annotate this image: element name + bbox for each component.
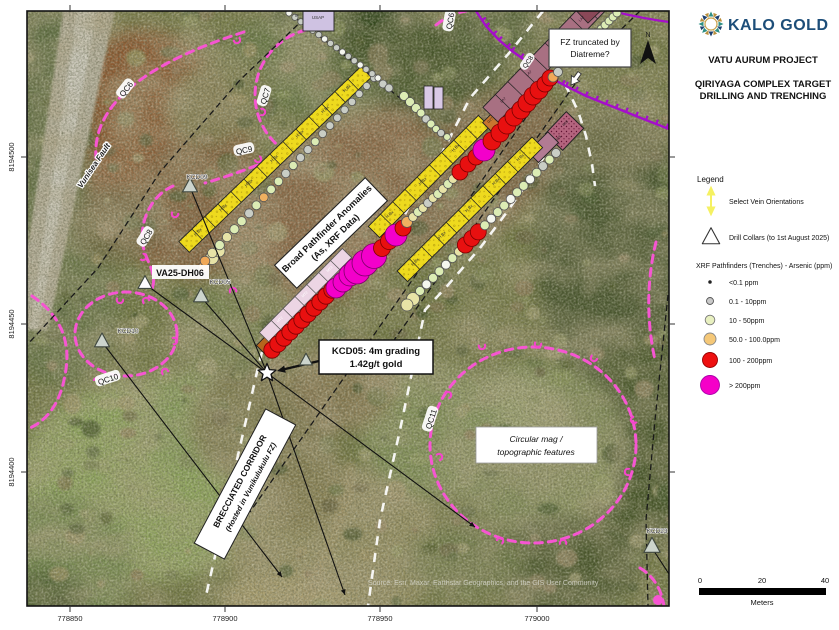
svg-text:779000: 779000 <box>524 614 549 623</box>
svg-text:<0.1 ppm: <0.1 ppm <box>729 280 759 287</box>
svg-text:Meters: Meters <box>751 598 774 607</box>
svg-text:778850: 778850 <box>57 614 82 623</box>
svg-text:Select Vein Orientations: Select Vein Orientations <box>729 199 804 206</box>
svg-text:KALO GOLD: KALO GOLD <box>728 17 829 34</box>
svg-text:778900: 778900 <box>212 614 237 623</box>
svg-text:IP: IP <box>295 13 299 18</box>
svg-text:1.42g/t gold: 1.42g/t gold <box>350 359 403 370</box>
svg-text:0.1 - 10ppm: 0.1 - 10ppm <box>729 299 767 306</box>
svg-text:XRF Pathfinders (Trenches) - A: XRF Pathfinders (Trenches) - Arsenic (pp… <box>696 263 832 270</box>
svg-text:KCD05: KCD05 <box>210 279 231 286</box>
svg-text:100 - 200ppm: 100 - 200ppm <box>729 358 772 365</box>
svg-text:40: 40 <box>821 576 829 585</box>
svg-text:Circular mag /: Circular mag / <box>510 434 565 444</box>
svg-text:N: N <box>645 32 650 39</box>
svg-text:KCD05: 4m grading: KCD05: 4m grading <box>332 346 420 357</box>
svg-text:50.0 - 100.0ppm: 50.0 - 100.0ppm <box>729 337 780 344</box>
svg-text:VA25-DH06: VA25-DH06 <box>156 268 204 278</box>
svg-text:Diatreme?: Diatreme? <box>570 49 609 59</box>
svg-text:8194500: 8194500 <box>7 142 16 171</box>
svg-text:topographic features: topographic features <box>497 447 575 457</box>
svg-text:8194450: 8194450 <box>7 309 16 338</box>
svg-text:FZ truncated by: FZ truncated by <box>560 37 620 47</box>
svg-text:20: 20 <box>758 576 766 585</box>
svg-text:USAP: USAP <box>312 15 324 20</box>
svg-text:10 - 50ppm: 10 - 50ppm <box>729 318 765 325</box>
svg-text:KCD10: KCD10 <box>118 328 139 335</box>
svg-text:DRILLING AND TRENCHING: DRILLING AND TRENCHING <box>700 91 827 102</box>
svg-text:Legend: Legend <box>697 175 724 184</box>
svg-text:VATU AURUM PROJECT: VATU AURUM PROJECT <box>708 55 818 66</box>
svg-text:QIRIYAGA COMPLEX TARGET: QIRIYAGA COMPLEX TARGET <box>695 79 832 90</box>
svg-text:> 200ppm: > 200ppm <box>729 383 760 390</box>
svg-text:778950: 778950 <box>367 614 392 623</box>
svg-text:Source: Esri, Maxar, Earthstar: Source: Esri, Maxar, Earthstar Geographi… <box>368 580 599 587</box>
svg-text:8194400: 8194400 <box>7 457 16 486</box>
svg-text:KCD23: KCD23 <box>647 528 668 535</box>
svg-text:0: 0 <box>698 576 702 585</box>
svg-text:Drill Collars (to 1st August 2: Drill Collars (to 1st August 2025) <box>729 235 829 242</box>
svg-text:KCD09: KCD09 <box>187 174 208 181</box>
